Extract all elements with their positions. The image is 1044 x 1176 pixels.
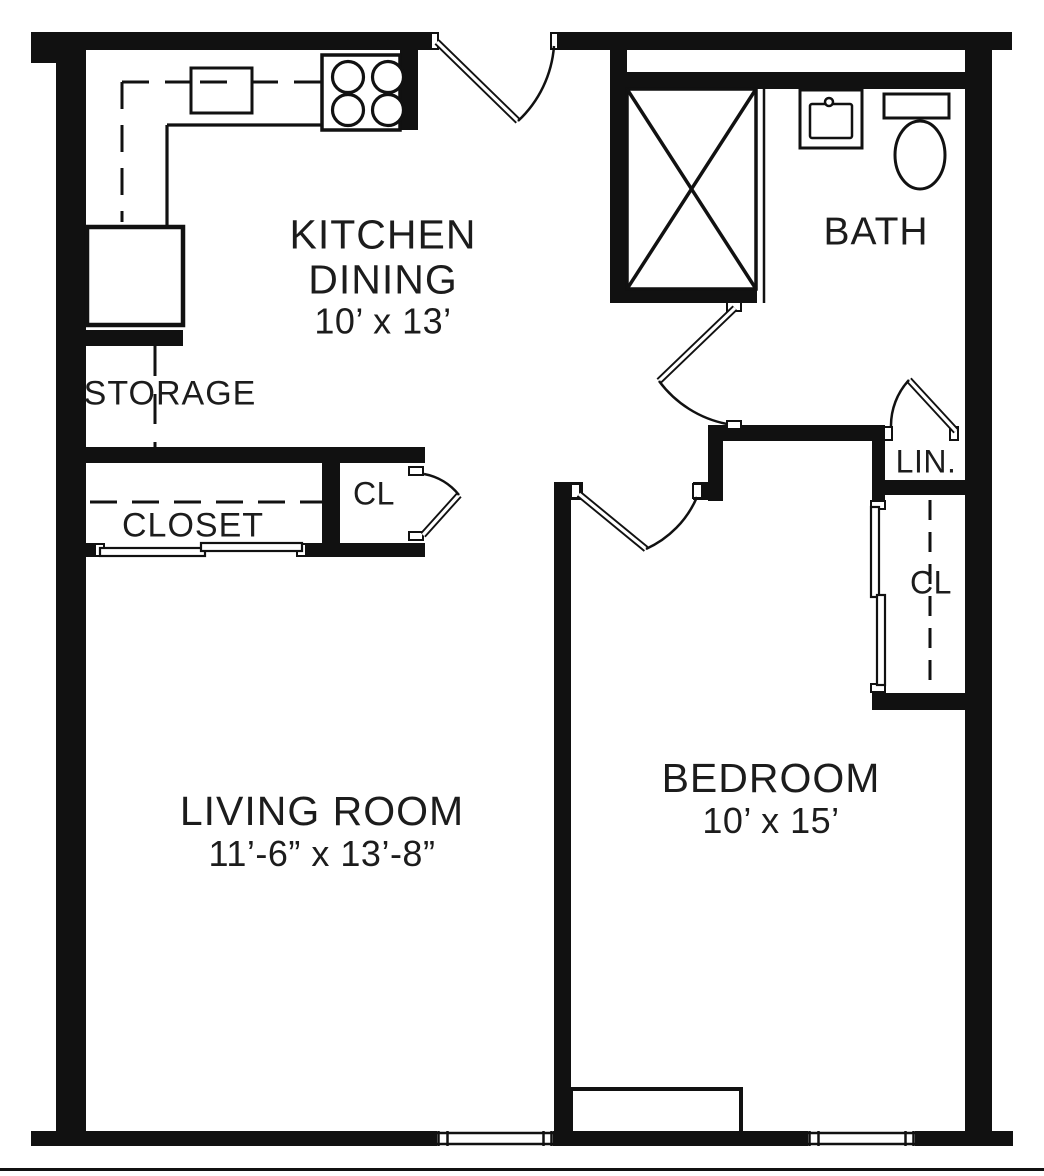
storage-label: STORAGE (84, 376, 257, 411)
wall-linen-bottom (872, 480, 992, 495)
wall-left (56, 50, 86, 1131)
bath-label: BATH (823, 213, 928, 254)
entry-closet-label: CL (353, 477, 395, 510)
floor-plan-drawing (0, 0, 1044, 1176)
wall-storage-stub (56, 330, 183, 346)
living-room-window (437, 1131, 553, 1146)
bedroom-name: BEDROOM (662, 757, 881, 800)
bath-door (659, 302, 741, 429)
bedroom-label: BEDROOM 10’ x 15’ (662, 757, 881, 839)
entry-closet-door (409, 467, 459, 540)
walls (31, 32, 1013, 1146)
kitchen-label: KITCHEN DINING 10’ x 13’ (290, 214, 477, 341)
wall-closet-top (56, 447, 425, 463)
bedroom-window (808, 1131, 915, 1146)
wall-top-right (558, 32, 1012, 50)
linen-closet-label: LIN. (896, 445, 957, 478)
shower-icon (627, 89, 764, 303)
wall-right (965, 50, 992, 1131)
bedroom-dims: 10’ x 15’ (662, 802, 881, 839)
bathroom-sink-icon (800, 90, 862, 148)
wall-bottom-1 (31, 1131, 437, 1146)
closet-sliding-doors (95, 543, 306, 557)
bedroom-closet-sliding-doors (871, 501, 885, 692)
wall-closet-divider (322, 450, 340, 557)
kitchen-name-line2: DINING (290, 258, 477, 301)
closet-label: CLOSET (122, 508, 264, 543)
wall-bath-bulkhead (613, 72, 965, 89)
living-room-dims: 11’-6” x 13’-8” (180, 835, 464, 872)
kitchen-sink-icon (191, 68, 252, 113)
bedroom-door (571, 484, 702, 549)
wall-bedroom-closet-bottom (872, 693, 992, 710)
bedroom-builtin (571, 1089, 741, 1133)
linen-door (884, 380, 958, 440)
refrigerator-icon (87, 227, 183, 325)
wall-top-left (31, 32, 432, 50)
floor-plan: KITCHEN DINING 10’ x 13’ BATH STORAGE CL… (0, 0, 1044, 1176)
kitchen-name-line1: KITCHEN (290, 214, 477, 257)
image-bottom-edge (0, 1168, 1044, 1171)
wall-bottom-3 (915, 1131, 1013, 1146)
toilet-icon (884, 94, 949, 189)
bedroom-closet-label: CL (910, 566, 952, 599)
living-room-label: LIVING ROOM 11’-6” x 13’-8” (180, 790, 464, 872)
wall-living-bedroom-divider (554, 490, 571, 1131)
stove-icon (322, 55, 404, 130)
entry-door (431, 33, 558, 121)
kitchen-dims: 10’ x 13’ (290, 303, 477, 340)
living-room-name: LIVING ROOM (180, 790, 464, 833)
